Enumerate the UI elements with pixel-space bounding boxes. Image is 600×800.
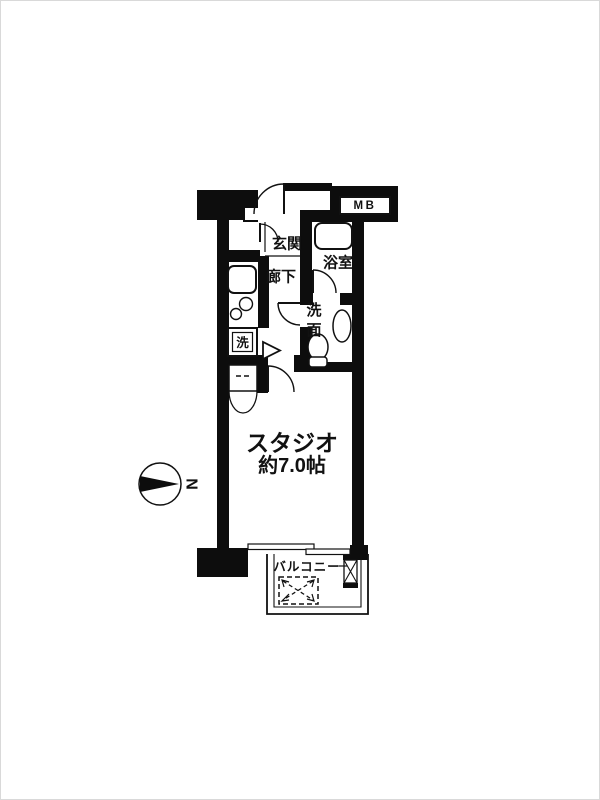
bathroom-door <box>313 270 336 293</box>
entry-direction-marker <box>263 342 280 359</box>
hallway-label: 廊下 <box>266 268 296 286</box>
wash-basin <box>333 310 351 342</box>
balcony-sliding-window <box>248 544 350 555</box>
wall-kitchen-divider <box>258 256 269 328</box>
evacuation-hatch <box>279 577 318 604</box>
toilet <box>308 334 328 367</box>
bathroom-label: 浴室 <box>323 254 353 272</box>
floor-plan-page: N MB 玄関 廊下 浴室 洗面 洗 スタジオ 約7.0帖 バルコニー <box>0 0 600 800</box>
balcony-label: バルコニー <box>273 560 340 574</box>
meter-box-label: MB <box>354 200 377 212</box>
pipe-duct <box>343 555 358 588</box>
washroom-door <box>278 303 300 325</box>
bathtub <box>315 223 352 249</box>
wall-left <box>217 220 229 550</box>
wall-corridor-washroom-a <box>300 218 312 302</box>
washroom-label: 洗面 <box>306 301 321 339</box>
wall-kitchen-top <box>217 250 260 262</box>
wall-right <box>352 222 364 557</box>
washing-machine-label: 洗 <box>236 335 249 350</box>
wall-top-thin <box>283 183 332 191</box>
compass-north-label: N <box>183 478 200 490</box>
wall-top-left-block <box>197 190 243 220</box>
wall-notch <box>245 208 258 220</box>
wall-closet-right <box>257 365 268 393</box>
closet <box>229 365 257 413</box>
room-size-label: 約7.0帖 <box>258 453 326 477</box>
gas-burners-icon <box>231 298 253 320</box>
wall-studio-top-stub <box>294 355 306 372</box>
entrance-door <box>254 184 284 214</box>
floor-plan-svg: N MB 玄関 廊下 浴室 洗面 洗 スタジオ 約7.0帖 バルコニー <box>0 0 600 800</box>
kitchen-sink <box>228 266 256 293</box>
wall-bottom-left-block <box>197 548 248 577</box>
studio-door <box>268 366 294 392</box>
closet-bifold-door <box>229 391 243 413</box>
entrance-label: 玄関 <box>272 235 302 253</box>
compass: N <box>139 463 200 505</box>
room-name-label: スタジオ <box>246 430 338 456</box>
